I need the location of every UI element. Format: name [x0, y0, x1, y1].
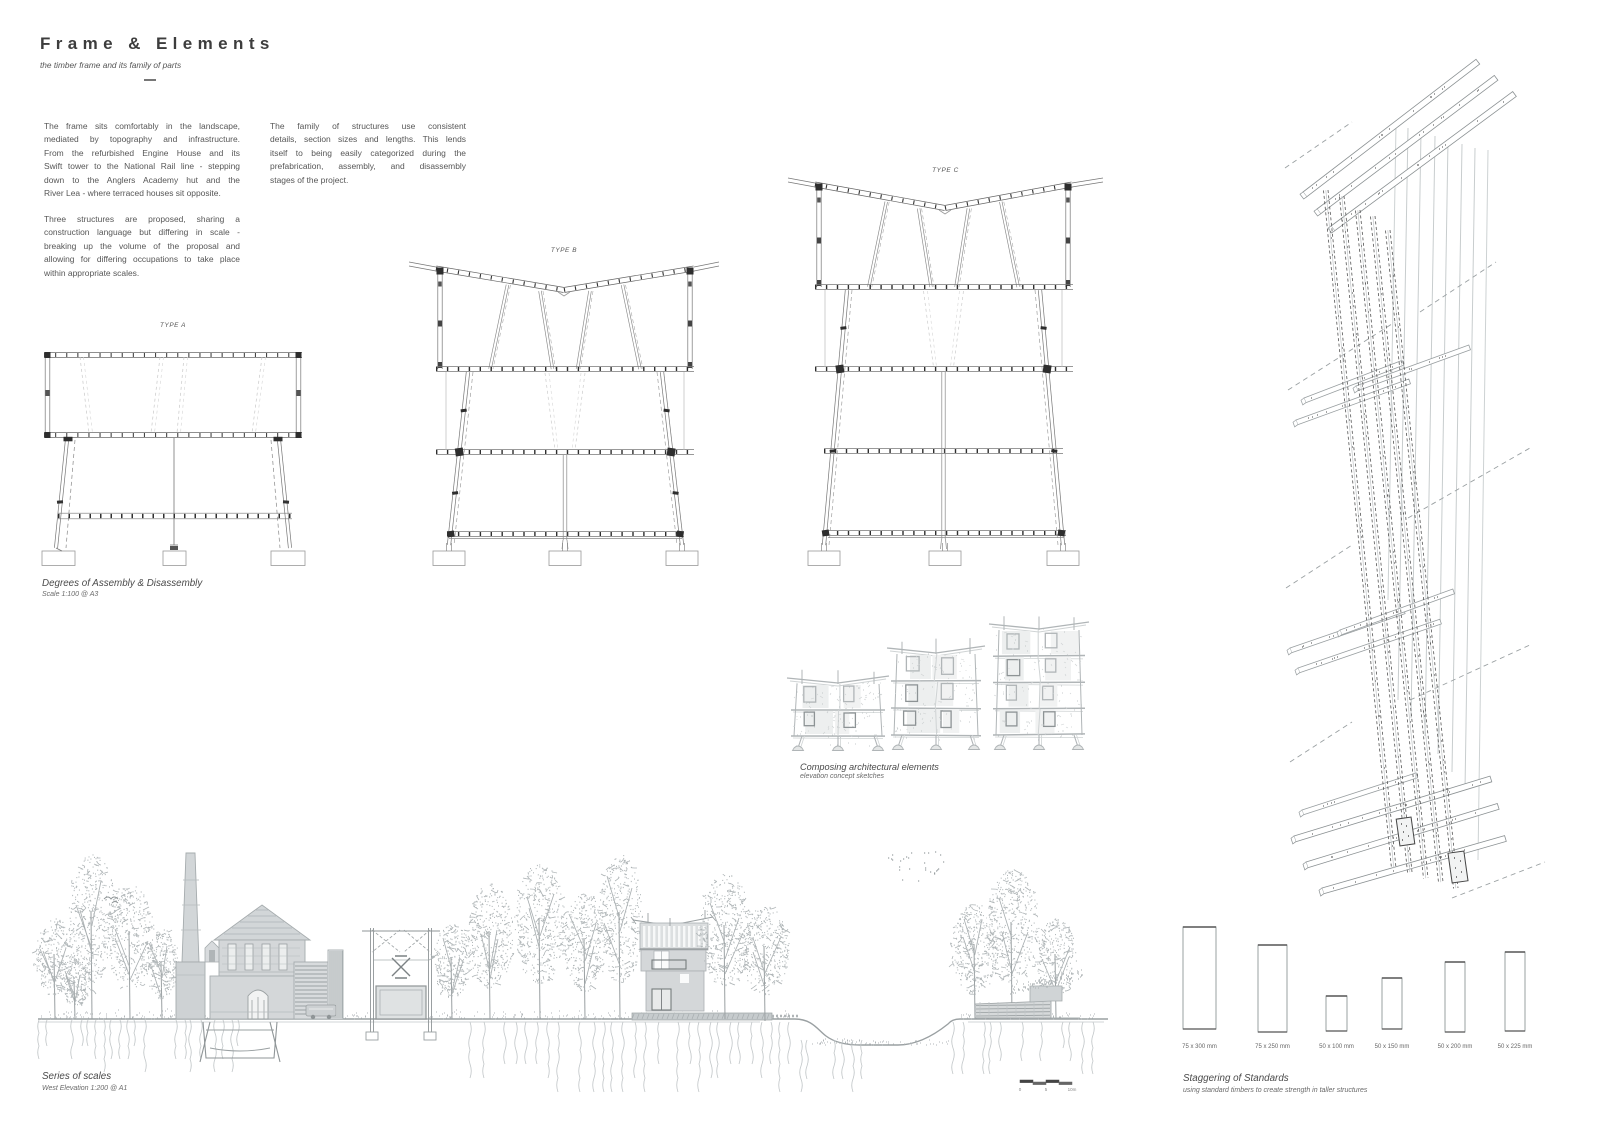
svg-text:TYPE C: TYPE C [932, 167, 959, 174]
svg-text:50 x 225 mm: 50 x 225 mm [1498, 1044, 1533, 1050]
svg-text:TYPE A: TYPE A [160, 322, 186, 329]
svg-text:TYPE B: TYPE B [551, 247, 577, 254]
svg-text:5: 5 [1045, 1087, 1048, 1092]
svg-text:75 x 300 mm: 75 x 300 mm [1182, 1044, 1217, 1050]
svg-text:50 x 200 mm: 50 x 200 mm [1438, 1044, 1473, 1050]
svg-text:75 x 250 mm: 75 x 250 mm [1255, 1044, 1290, 1050]
svg-text:0: 0 [1019, 1087, 1022, 1092]
svg-text:50 x 150 mm: 50 x 150 mm [1375, 1044, 1410, 1050]
svg-text:10m: 10m [1068, 1087, 1077, 1092]
svg-text:50 x 100 mm: 50 x 100 mm [1319, 1044, 1354, 1050]
